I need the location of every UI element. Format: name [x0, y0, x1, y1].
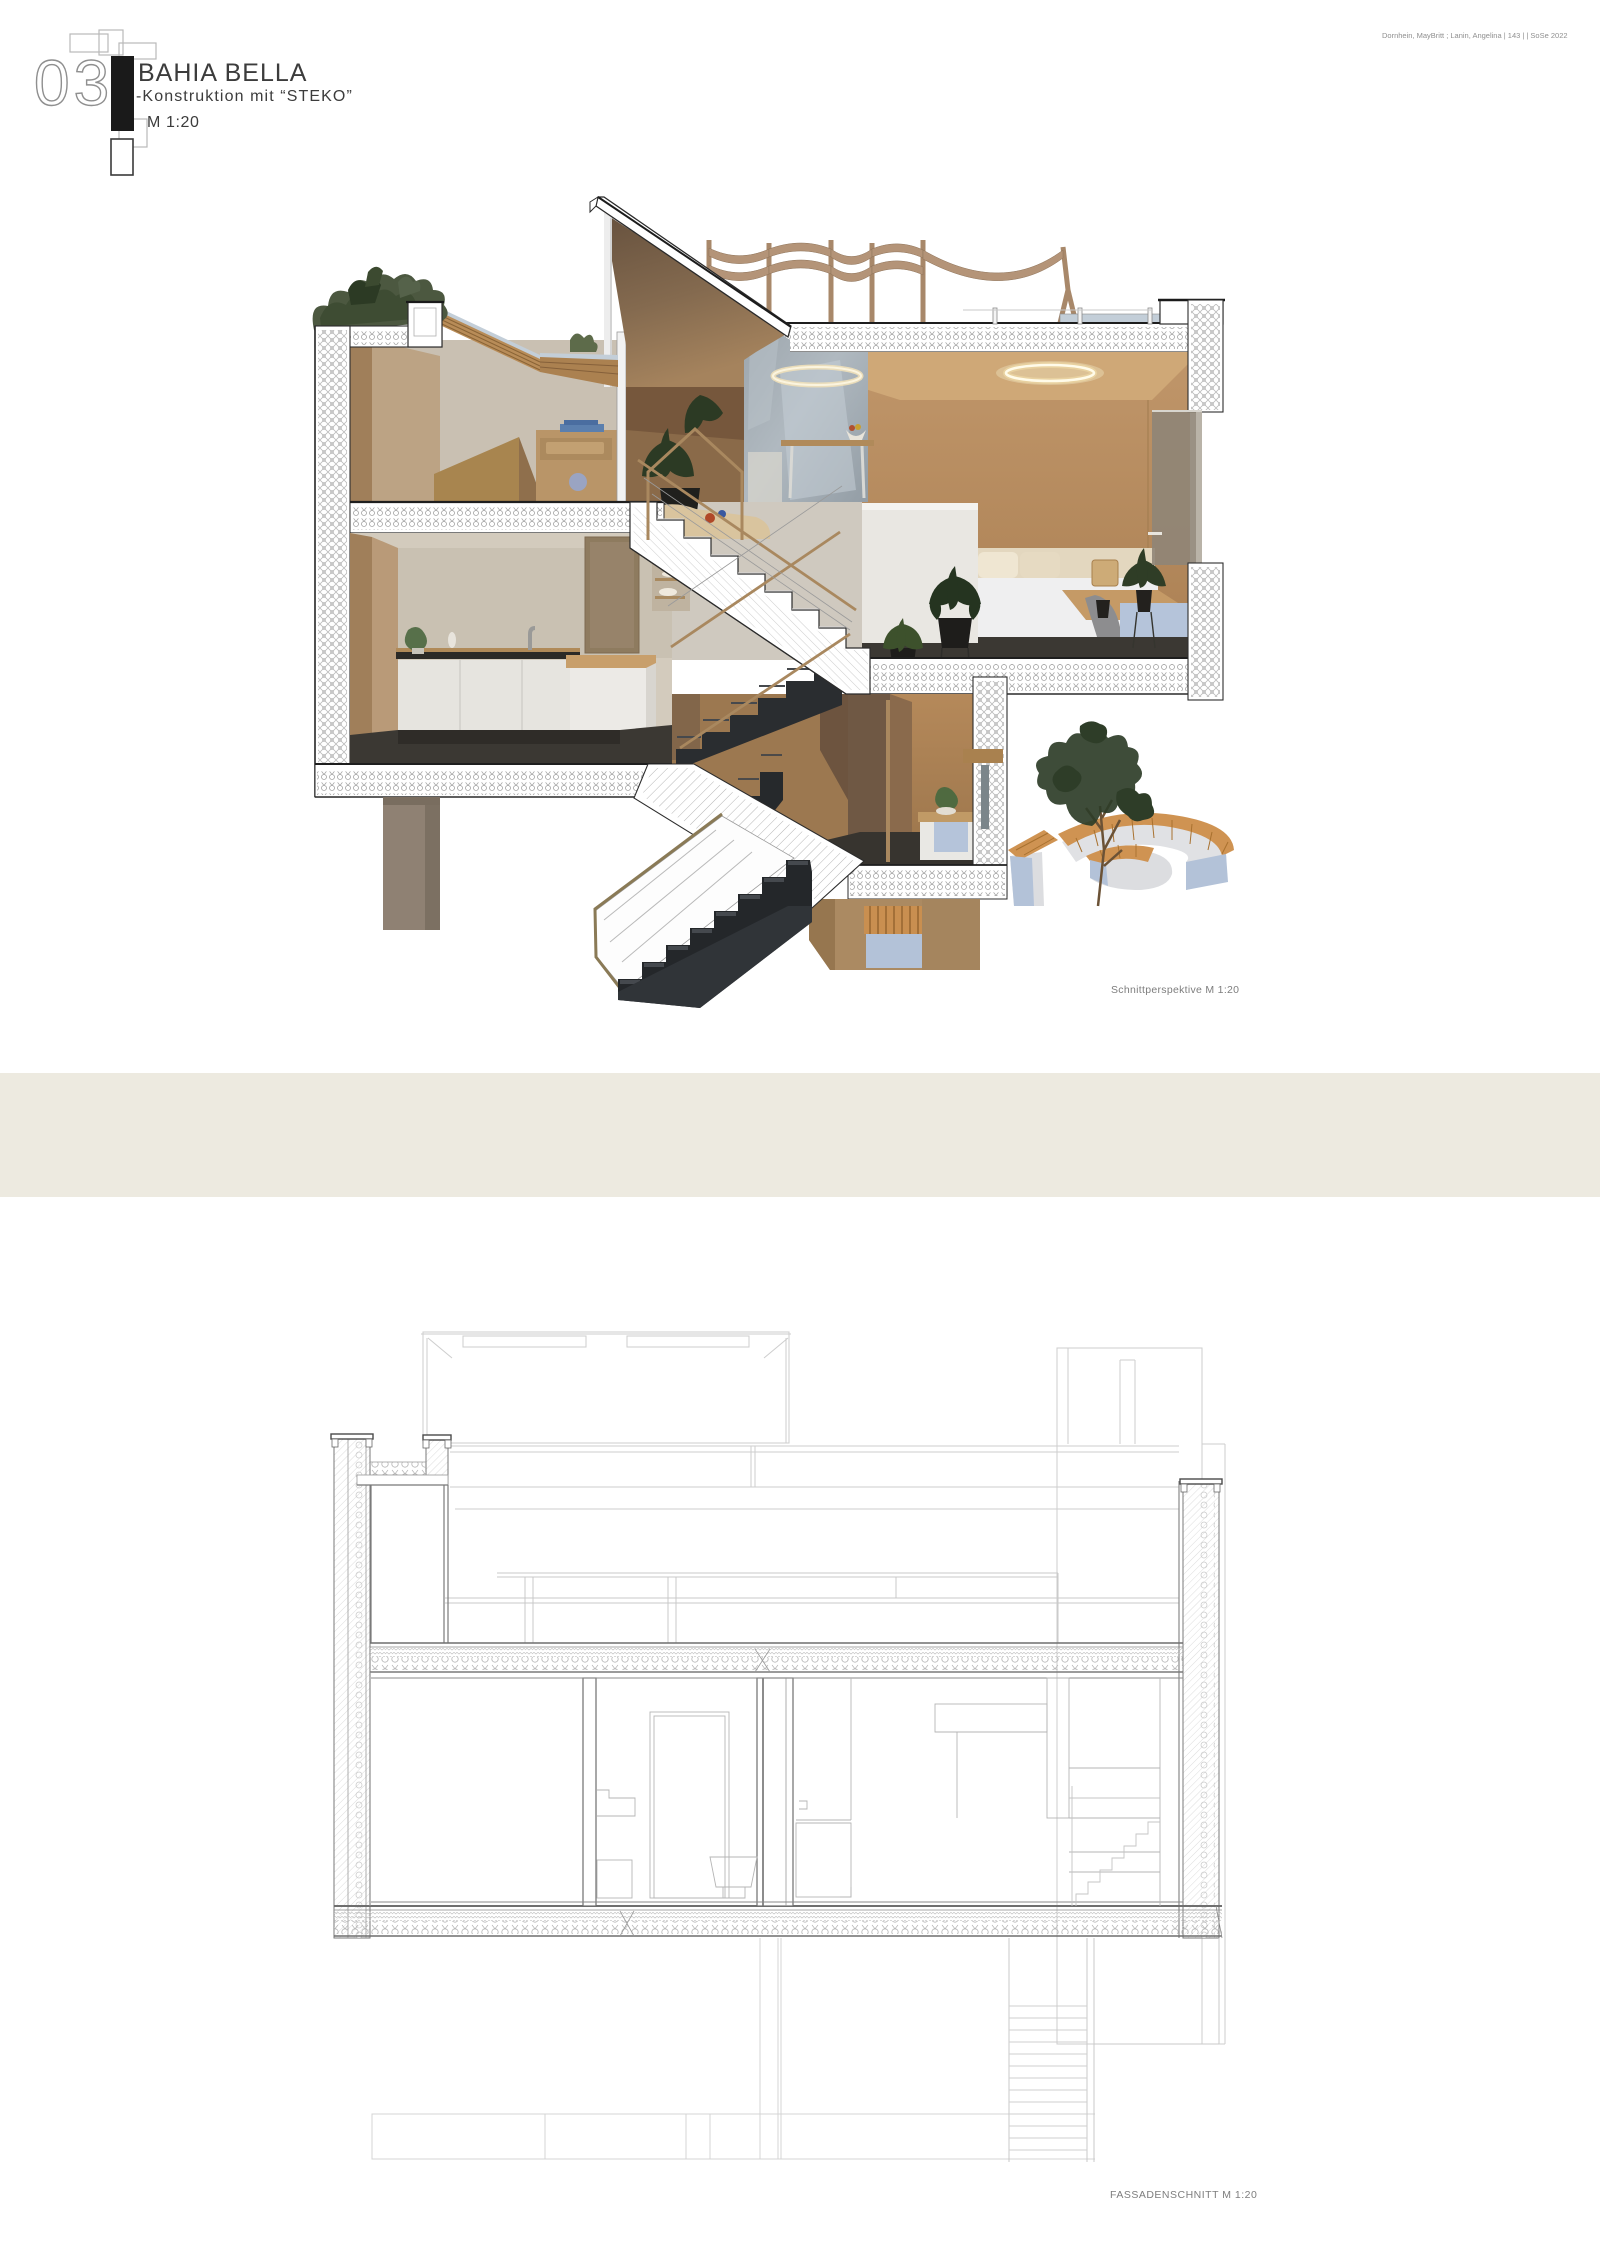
svg-text:03: 03 [34, 47, 113, 119]
